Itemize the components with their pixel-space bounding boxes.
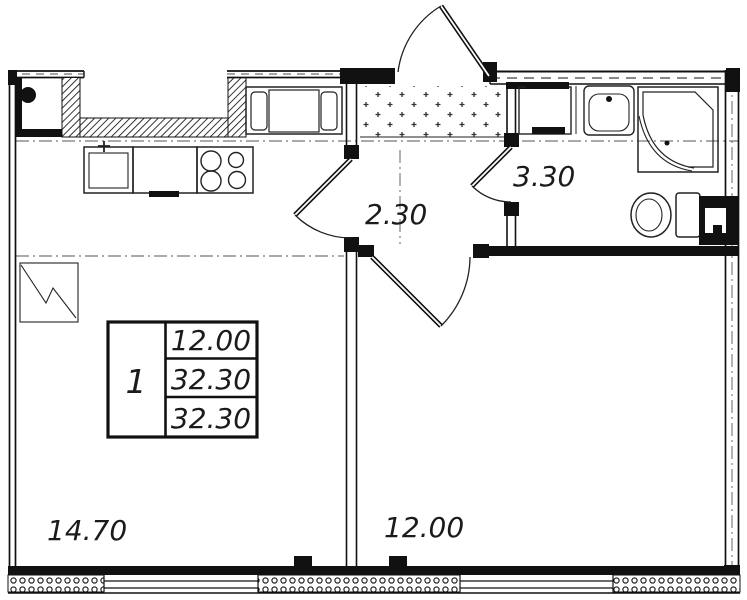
ventilation-shaft xyxy=(699,196,739,245)
entry-floor-zone xyxy=(360,86,504,137)
ventilation-hole xyxy=(20,87,36,103)
room-label-bedroom: 12.00 xyxy=(384,511,464,544)
stamp-total-area: 32.30 xyxy=(171,363,251,396)
wall-vent-left xyxy=(294,556,312,567)
stamp-living-area: 12.00 xyxy=(171,324,251,357)
stamp-rooms-count: 1 xyxy=(126,362,147,401)
info-stamp: 1 12.00 32.30 32.30 xyxy=(108,322,257,437)
stamp-total-area-full: 32.30 xyxy=(171,402,251,435)
room-label-kitchen-living: 14.70 xyxy=(47,514,127,547)
floor-plan: 1 12.00 32.30 32.30 14.70 12.00 2.30 3.3… xyxy=(0,0,747,600)
floor-plan-page: 1 12.00 32.30 32.30 14.70 12.00 2.30 3.3… xyxy=(0,0,747,600)
room-label-bathroom: 3.30 xyxy=(513,160,575,193)
wall-vent-right xyxy=(389,556,407,567)
room-label-hallway: 2.30 xyxy=(365,198,427,231)
